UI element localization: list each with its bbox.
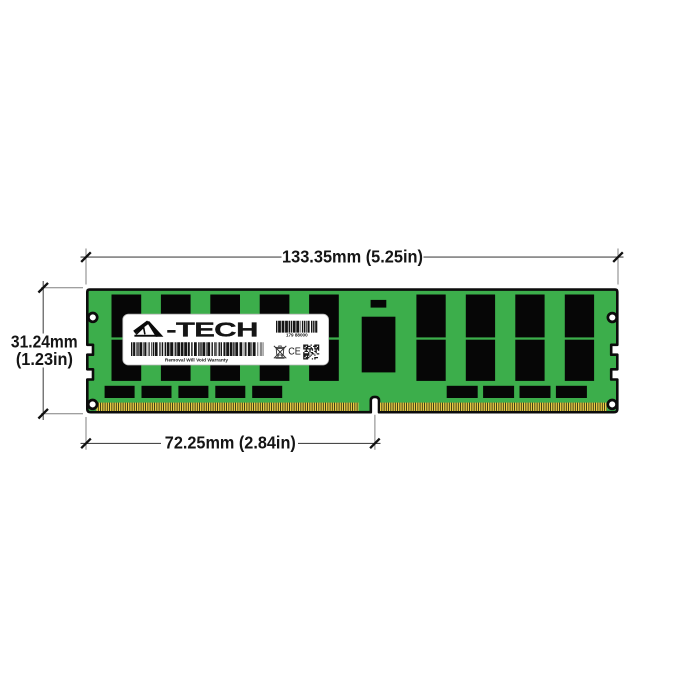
svg-text:133.35mm (5.25in): 133.35mm (5.25in) — [282, 246, 423, 266]
svg-text:Removal Will Void Warranty: Removal Will Void Warranty — [165, 358, 228, 364]
svg-text:72.25mm (2.84in): 72.25mm (2.84in) — [165, 433, 296, 453]
svg-text:-TECH: -TECH — [166, 318, 258, 341]
svg-text:CE: CE — [288, 347, 301, 358]
svg-text:179 88000: 179 88000 — [286, 332, 308, 337]
svg-text:(1.23in): (1.23in) — [16, 349, 73, 369]
